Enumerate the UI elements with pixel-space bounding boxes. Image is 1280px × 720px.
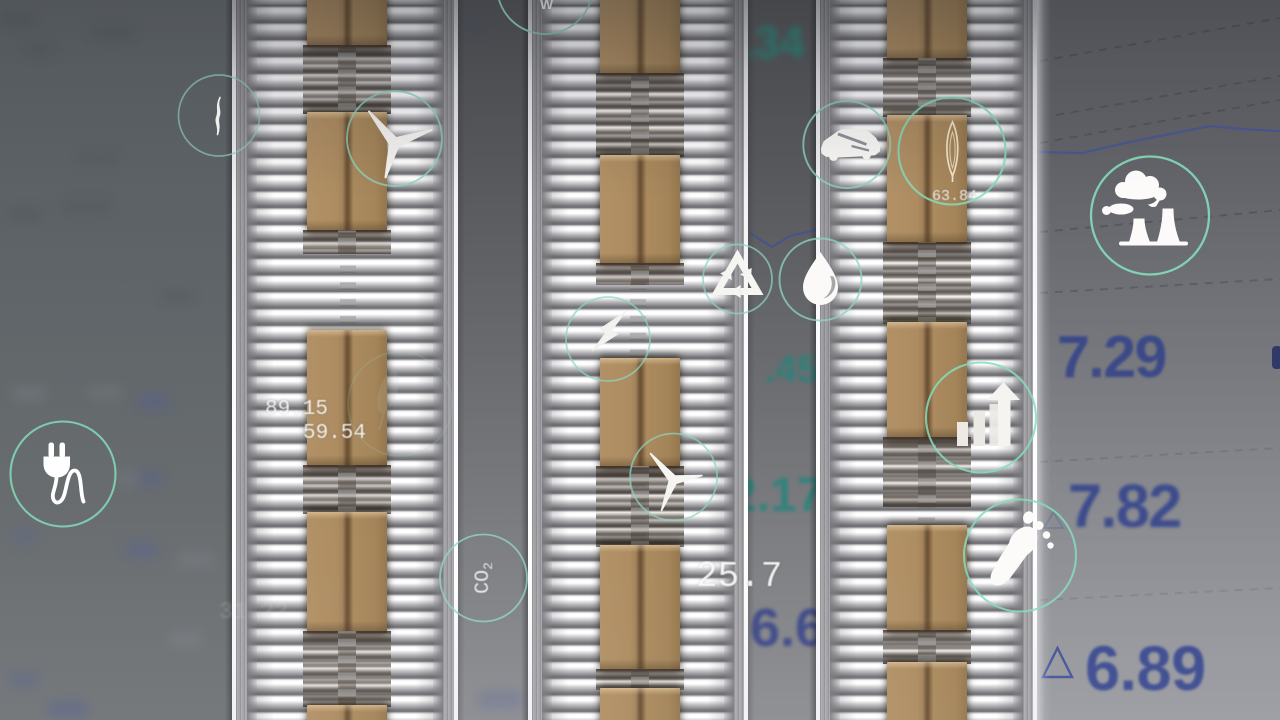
svg-text:W: W	[540, 0, 554, 12]
